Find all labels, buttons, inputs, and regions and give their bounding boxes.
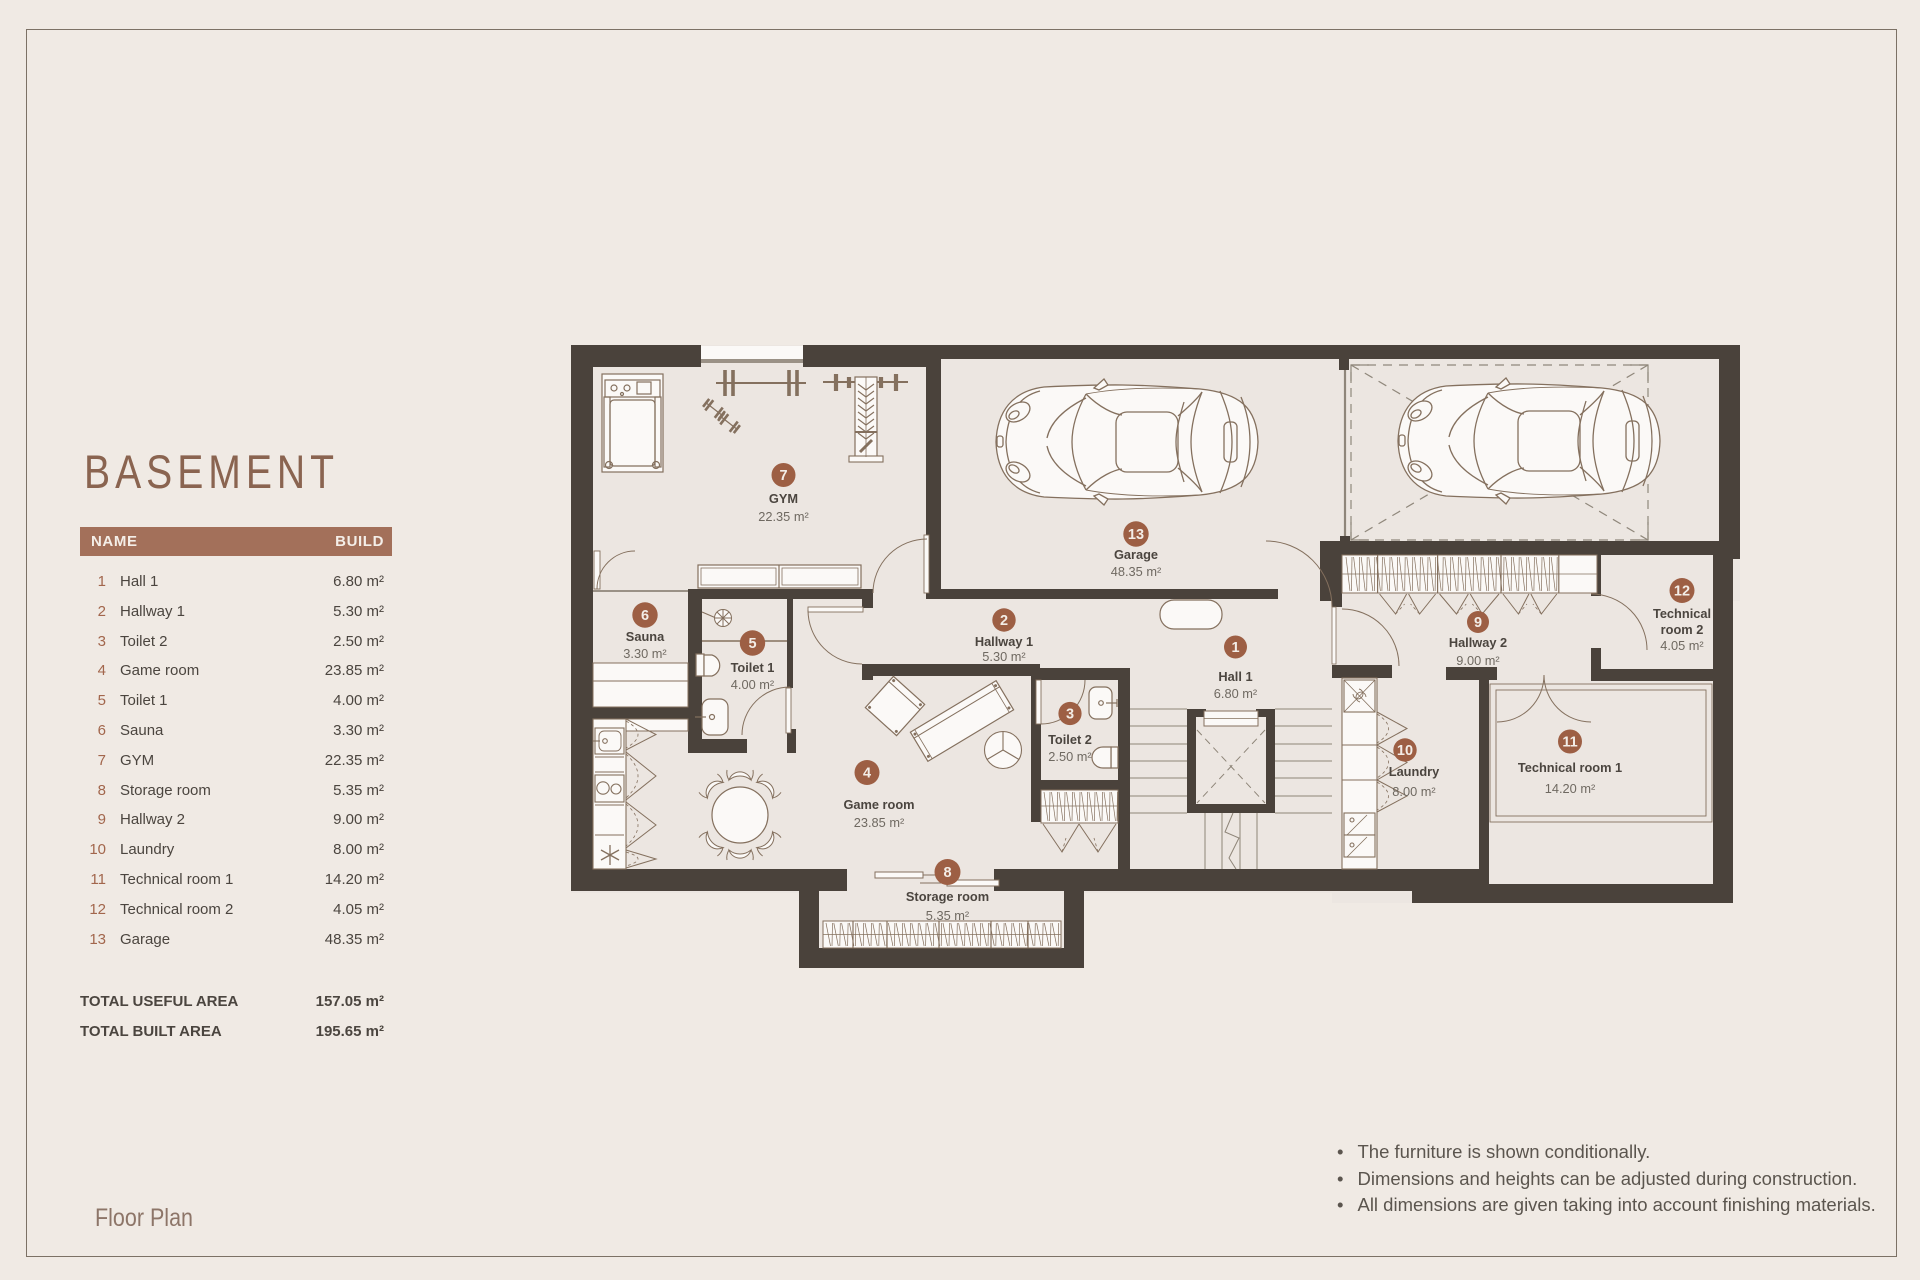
svg-text:5: 5 bbox=[748, 636, 756, 652]
svg-text:22.35 m²: 22.35 m² bbox=[758, 509, 809, 524]
svg-text:5.35 m²: 5.35 m² bbox=[926, 908, 970, 923]
svg-text:Floor Plan: Floor Plan bbox=[95, 1204, 193, 1232]
svg-text:2.50 m²: 2.50 m² bbox=[1048, 749, 1092, 764]
svg-text:BASEMENT: BASEMENT bbox=[84, 445, 339, 498]
svg-text:1: 1 bbox=[1231, 640, 1239, 656]
svg-text:9.00 m²: 9.00 m² bbox=[1456, 653, 1500, 668]
svg-text:GYM: GYM bbox=[769, 491, 798, 506]
svg-text:Technical: Technical bbox=[1653, 606, 1711, 621]
svg-text:11: 11 bbox=[1562, 735, 1577, 751]
svg-text:Toilet 1: Toilet 1 bbox=[731, 660, 775, 675]
svg-text:Laundry: Laundry bbox=[1389, 764, 1440, 779]
svg-text:8.00 m²: 8.00 m² bbox=[1392, 784, 1436, 799]
svg-text:48.35 m²: 48.35 m² bbox=[1111, 564, 1162, 579]
svg-text:14.20 m²: 14.20 m² bbox=[1545, 781, 1596, 796]
svg-text:room 2: room 2 bbox=[1661, 622, 1704, 637]
svg-text:9: 9 bbox=[1474, 615, 1482, 631]
svg-text:Hallway 2: Hallway 2 bbox=[1449, 635, 1507, 650]
svg-text:4.05 m²: 4.05 m² bbox=[1660, 638, 1704, 653]
svg-text:Storage room: Storage room bbox=[906, 889, 989, 904]
svg-text:4: 4 bbox=[863, 766, 871, 782]
svg-text:Technical room 1: Technical room 1 bbox=[1518, 760, 1622, 775]
svg-text:6: 6 bbox=[641, 608, 649, 624]
svg-text:Hallway 1: Hallway 1 bbox=[975, 634, 1033, 649]
svg-text:6.80 m²: 6.80 m² bbox=[1214, 686, 1258, 701]
svg-text:12: 12 bbox=[1674, 584, 1690, 600]
svg-text:Game room: Game room bbox=[843, 797, 914, 812]
svg-text:8: 8 bbox=[943, 865, 951, 881]
svg-text:5.30 m²: 5.30 m² bbox=[982, 649, 1026, 664]
svg-text:7: 7 bbox=[779, 468, 787, 484]
svg-text:Toilet 2: Toilet 2 bbox=[1048, 732, 1092, 747]
svg-text:23.85 m²: 23.85 m² bbox=[854, 815, 905, 830]
svg-text:10: 10 bbox=[1397, 743, 1413, 759]
svg-text:13: 13 bbox=[1128, 527, 1144, 543]
svg-text:Hall 1: Hall 1 bbox=[1218, 669, 1252, 684]
svg-text:Garage: Garage bbox=[1114, 547, 1158, 562]
svg-text:Sauna: Sauna bbox=[626, 629, 665, 644]
svg-text:2: 2 bbox=[1000, 613, 1008, 629]
svg-text:3.30 m²: 3.30 m² bbox=[623, 646, 667, 661]
svg-text:4.00 m²: 4.00 m² bbox=[731, 677, 775, 692]
svg-text:3: 3 bbox=[1066, 707, 1074, 723]
